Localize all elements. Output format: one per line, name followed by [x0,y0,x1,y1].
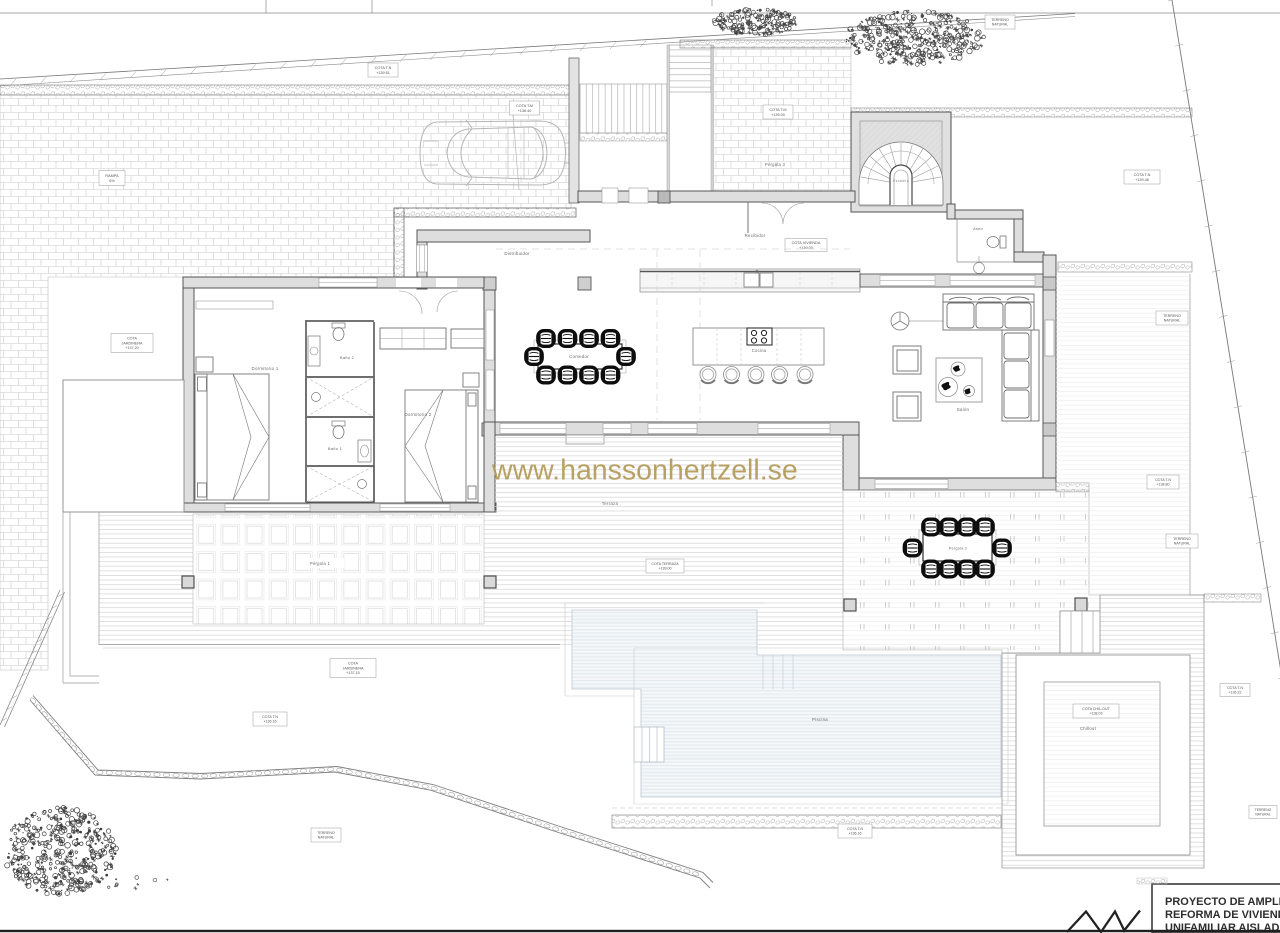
svg-text:Pérgola 3: Pérgola 3 [765,162,786,167]
svg-text:Baño 1: Baño 1 [328,446,343,451]
svg-text:COTA T.N: COTA T.N [1155,478,1171,482]
svg-text:+136.16: +136.16 [263,720,276,724]
svg-text:NATURAL: NATURAL [1174,542,1191,546]
svg-text:+139.46: +139.46 [1135,178,1149,182]
svg-text:Distribuidor: Distribuidor [504,251,529,256]
svg-text:COTA: COTA [127,336,138,340]
svg-text:COTA T.N: COTA T.N [375,66,392,70]
svg-text:+137.20: +137.20 [125,346,138,350]
svg-text:JARDINERA: JARDINERA [122,341,143,345]
svg-text:TERRENO: TERRENO [1163,314,1181,318]
svg-text:Recibidor: Recibidor [745,233,766,238]
svg-text:JARDINERA: JARDINERA [343,666,364,670]
svg-text:+139.00: +139.00 [771,113,785,117]
svg-text:+138.80: +138.80 [1156,483,1169,487]
svg-text:REFORMA DE VIVIENDA: REFORMA DE VIVIENDA [1165,909,1280,921]
svg-text:COTA T.M: COTA T.M [769,108,786,112]
svg-text:Pérgola 2: Pérgola 2 [949,547,968,551]
svg-text:+139.00: +139.00 [658,567,671,571]
svg-text:COTA TERRAZA: COTA TERRAZA [651,562,679,566]
svg-text:COTA T.N: COTA T.N [262,715,278,719]
svg-text:NATURAL: NATURAL [318,836,335,840]
svg-text:COTA T.N: COTA T.N [1134,173,1151,177]
svg-text:6%: 6% [109,179,115,183]
svg-text:RAMPA: RAMPA [105,174,119,178]
svg-text:COTA CHIL-OUT: COTA CHIL-OUT [1082,707,1110,711]
svg-text:Piscina: Piscina [812,717,828,722]
svg-text:PROYECTO DE AMPLIAC: PROYECTO DE AMPLIAC [1165,896,1280,908]
svg-text:Dormitorio 2: Dormitorio 2 [405,412,432,417]
svg-text:+136.16: +136.16 [848,832,861,836]
svg-text:COTA T.M: COTA T.M [516,104,533,108]
svg-text:+138.03: +138.03 [1089,712,1102,716]
svg-text:NATURAL: NATURAL [1164,319,1181,323]
svg-text:Escalera: Escalera [893,179,909,183]
svg-text:TERRENO: TERRENO [317,831,335,835]
svg-text:Aseo: Aseo [973,227,983,231]
svg-text:COTA: COTA [348,661,359,665]
svg-text:TERRENO: TERRENO [1173,537,1191,541]
svg-text:Salón: Salón [957,407,970,412]
svg-text:Dormitorio 1: Dormitorio 1 [252,366,279,371]
svg-text:Cocina: Cocina [752,348,767,353]
svg-text:+137.15: +137.15 [346,671,359,675]
svg-text:COTA VIVIENDA: COTA VIVIENDA [792,241,821,245]
svg-text:TERRENO: TERRENO [991,18,1009,22]
svg-text:Terraza: Terraza [602,501,619,506]
svg-text:NATURAL: NATURAL [1255,813,1271,817]
svg-text:NATURAL: NATURAL [992,23,1009,27]
svg-text:TERRENO: TERRENO [1255,808,1272,812]
svg-text:www.hanssonhertzell.se: www.hanssonhertzell.se [491,455,798,487]
svg-text:Comedor: Comedor [569,354,589,359]
svg-text:COTA T.N: COTA T.N [847,827,863,831]
svg-text:Pérgola 1: Pérgola 1 [310,561,331,566]
svg-text:COTA T.N: COTA T.N [1227,686,1243,690]
svg-text:Chillout: Chillout [1080,726,1097,731]
svg-text:+139.61: +139.61 [376,71,390,75]
svg-text:+136.40: +136.40 [518,109,532,113]
svg-text:+136.22: +136.22 [1228,691,1241,695]
svg-text:Baño 2: Baño 2 [340,355,355,360]
